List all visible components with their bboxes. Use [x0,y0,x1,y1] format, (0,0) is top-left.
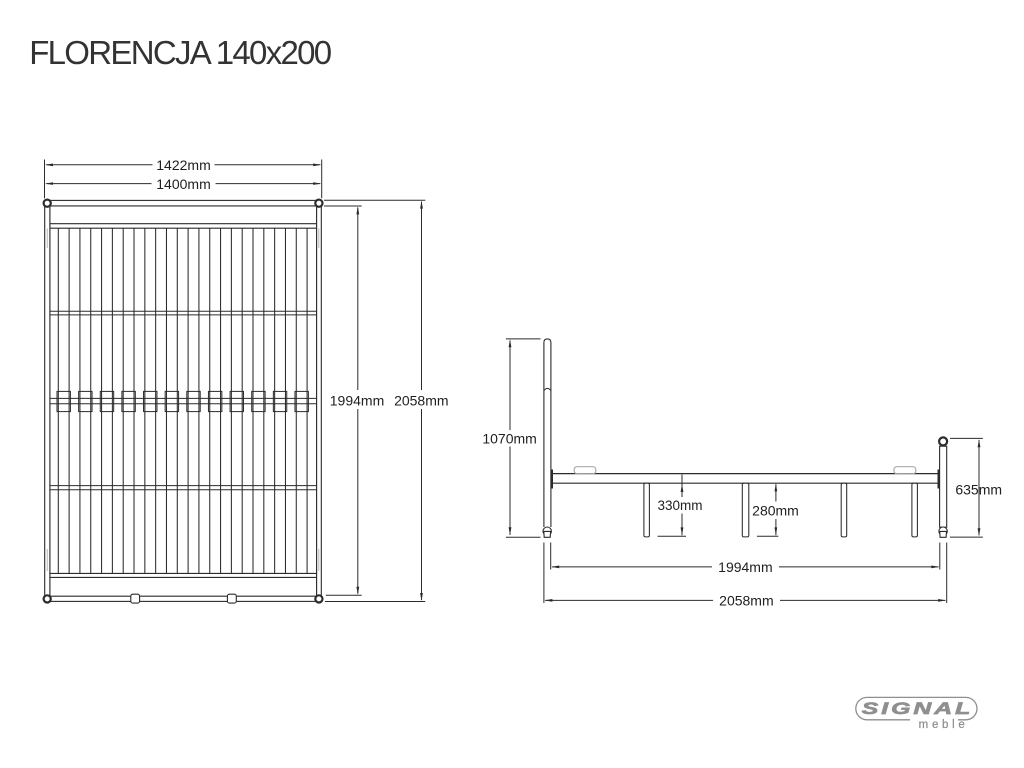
svg-text:meble: meble [919,719,969,731]
svg-text:1400mm: 1400mm [156,176,210,192]
svg-text:1994mm: 1994mm [718,559,772,575]
svg-text:2058mm: 2058mm [719,593,773,609]
svg-text:2058mm: 2058mm [394,393,448,409]
svg-text:SIGNAL: SIGNAL [862,700,973,718]
svg-text:1070mm: 1070mm [482,430,536,446]
svg-text:1994mm: 1994mm [330,393,384,409]
svg-text:635mm: 635mm [955,481,1002,497]
svg-text:280mm: 280mm [752,503,799,519]
svg-text:1422mm: 1422mm [156,157,210,173]
svg-text:330mm: 330mm [657,498,702,513]
svg-text:FLORENCJA 140x200: FLORENCJA 140x200 [29,34,332,71]
